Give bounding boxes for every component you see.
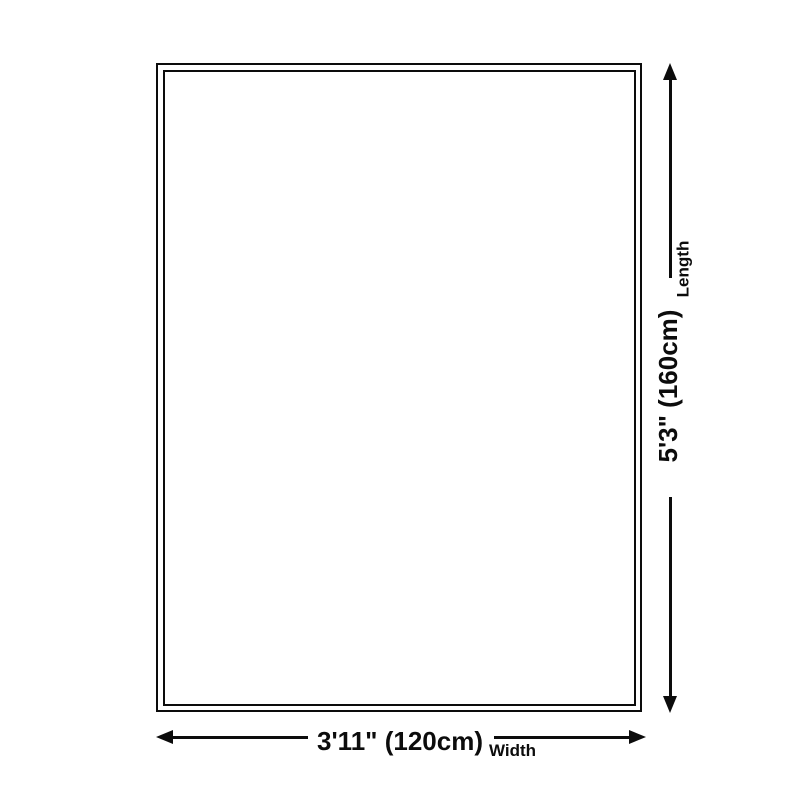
width-dimension-value: 3'11" (120cm): [317, 726, 483, 756]
rug-outline: [156, 63, 642, 712]
width-dimension-label: Width: [489, 741, 536, 760]
length-arrow-down-icon: [663, 696, 677, 713]
length-arrow-line-top: [669, 78, 672, 278]
length-dimension-value: 5'3" (160cm): [653, 310, 683, 463]
rug-size-diagram: 3'11" (120cm) Width Length 5'3" (160cm): [0, 0, 800, 800]
rug-inner-outline: [163, 70, 636, 706]
width-arrow-right-icon: [629, 730, 646, 744]
width-arrow-line-right: [494, 736, 631, 739]
length-dimension-label: Length: [674, 241, 693, 298]
length-arrow-line-bottom: [669, 497, 672, 698]
width-arrow-line-left: [171, 736, 308, 739]
